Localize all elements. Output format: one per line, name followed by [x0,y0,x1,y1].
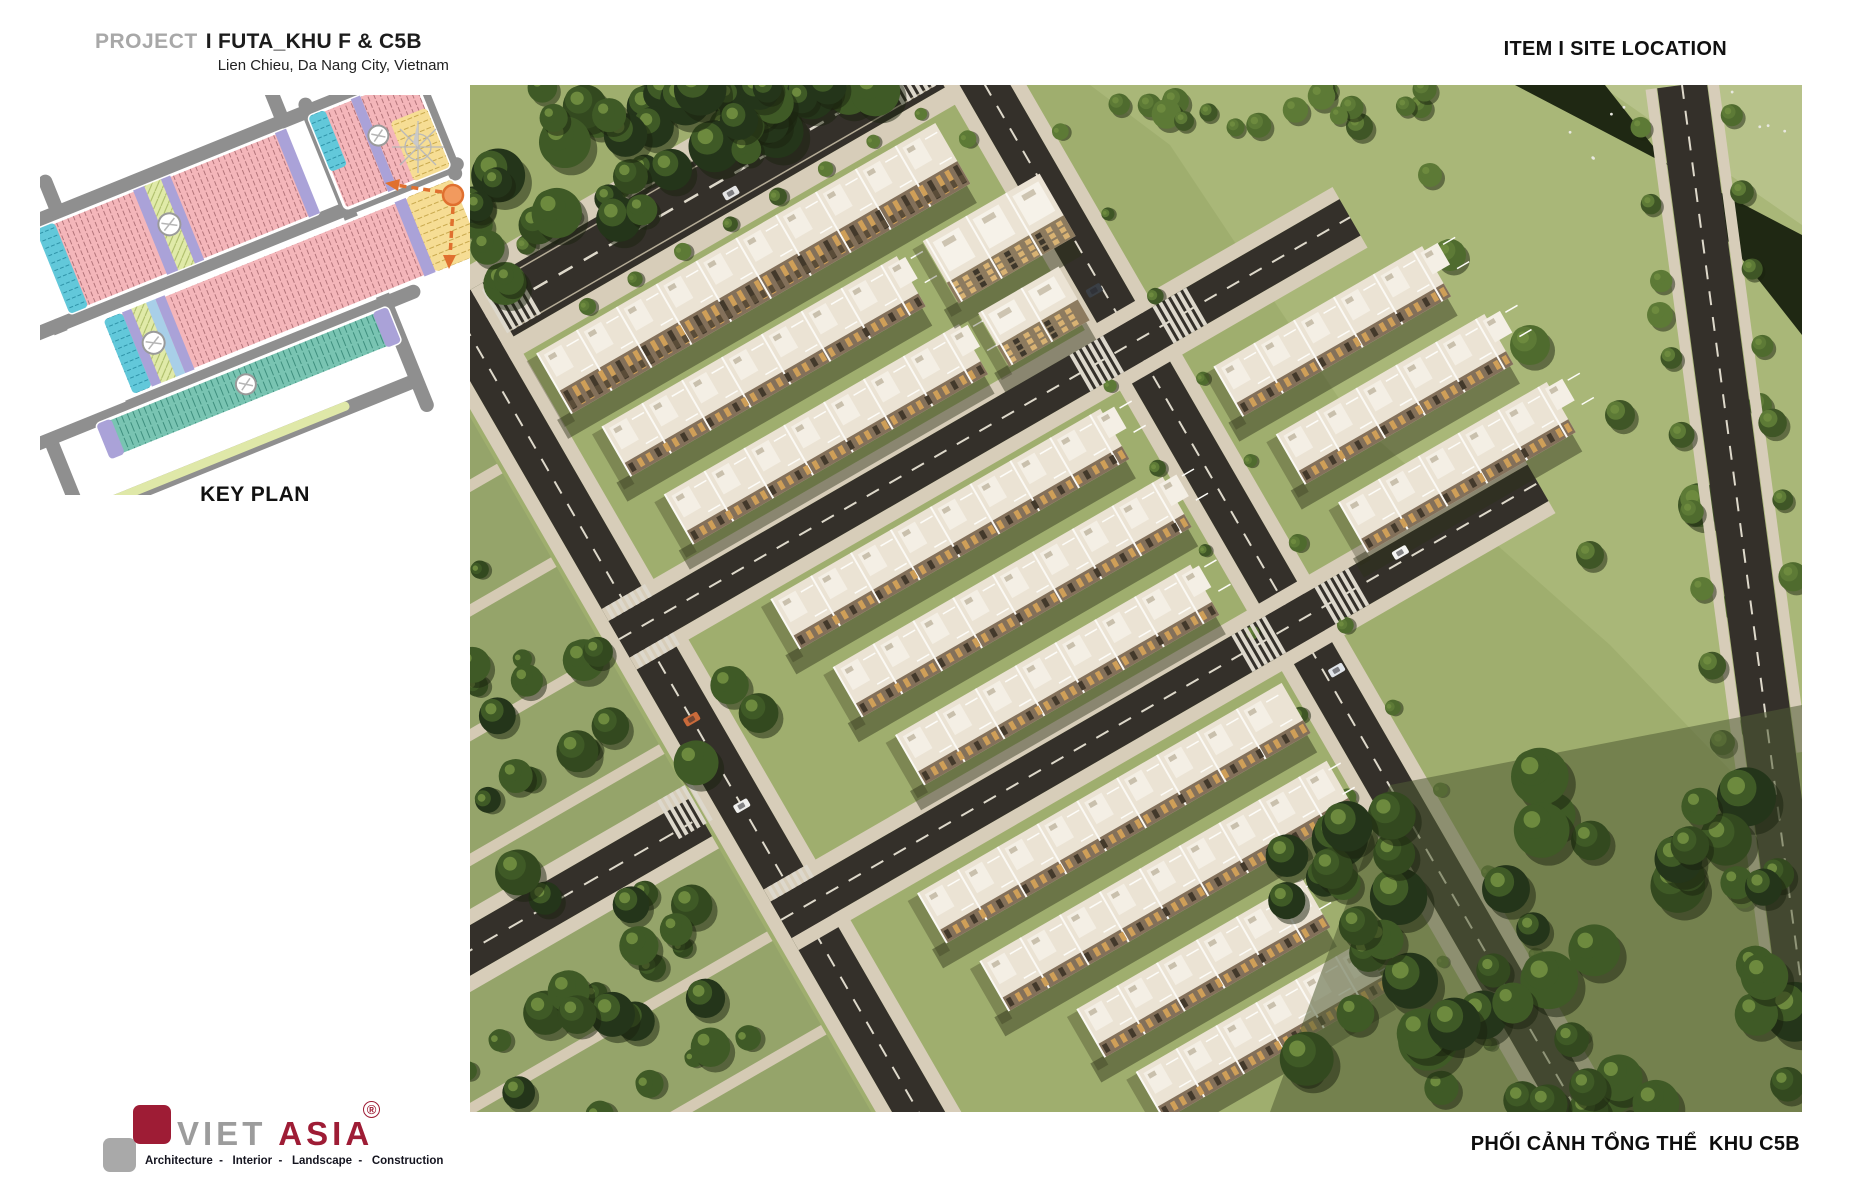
item-label: ITEM I SITE LOCATION [1504,38,1727,61]
project-title-box: I FUTA_KHU F & C5B Lien Chieu, Da Nang C… [206,30,449,74]
footer-caption: PHỐI CẢNH TỔNG THỂ KHU C5B [1471,1133,1800,1156]
registered-mark-icon: ® [363,1101,380,1118]
logo-gray-square [103,1138,136,1172]
key-plan-map [40,95,470,495]
header-left: PROJECT I FUTA_KHU F & C5B Lien Chieu, D… [95,30,449,74]
company-logo: VIET ASIA ® Architecture - Interior - La… [95,1093,425,1183]
logo-wordmark: VIET ASIA [177,1115,373,1153]
key-plan-rotated-layout [40,95,470,495]
key-plan-svg [40,95,470,495]
site-render-image [470,85,1802,1112]
project-label: PROJECT [95,30,198,54]
logo-red-square [133,1105,171,1144]
key-plan-caption: KEY PLAN [160,483,350,507]
logo-tagline: Architecture - Interior - Landscape - Co… [145,1155,443,1167]
aerial-render-svg [470,85,1802,1112]
project-location: Lien Chieu, Da Nang City, Vietnam [218,57,449,74]
project-title: I FUTA_KHU F & C5B [206,30,449,54]
